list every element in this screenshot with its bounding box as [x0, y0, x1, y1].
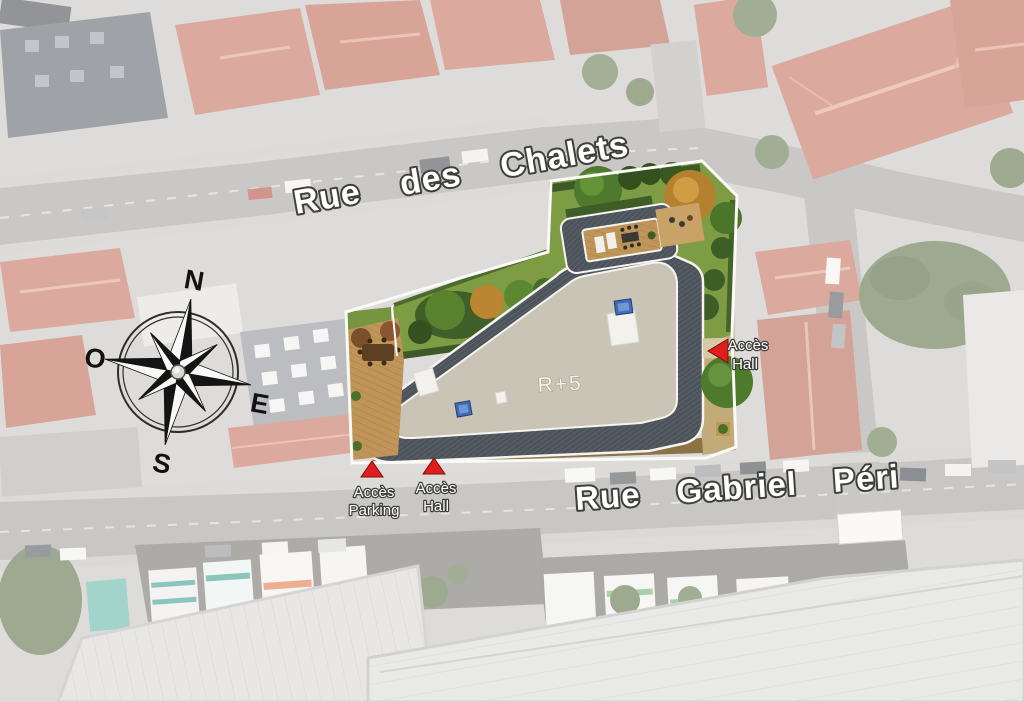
- svg-text:Accès: Accès: [354, 484, 395, 501]
- svg-text:Accès: Accès: [416, 480, 457, 497]
- svg-text:Parking: Parking: [349, 502, 400, 519]
- svg-text:Accès: Accès: [728, 337, 769, 354]
- site-plan-image: N E S O Rue des Chalets Rue Gabriel Péri…: [0, 0, 1024, 702]
- building-height-label: R+5: [537, 372, 583, 397]
- svg-text:Hall: Hall: [423, 498, 449, 515]
- svg-text:Hall: Hall: [732, 356, 758, 373]
